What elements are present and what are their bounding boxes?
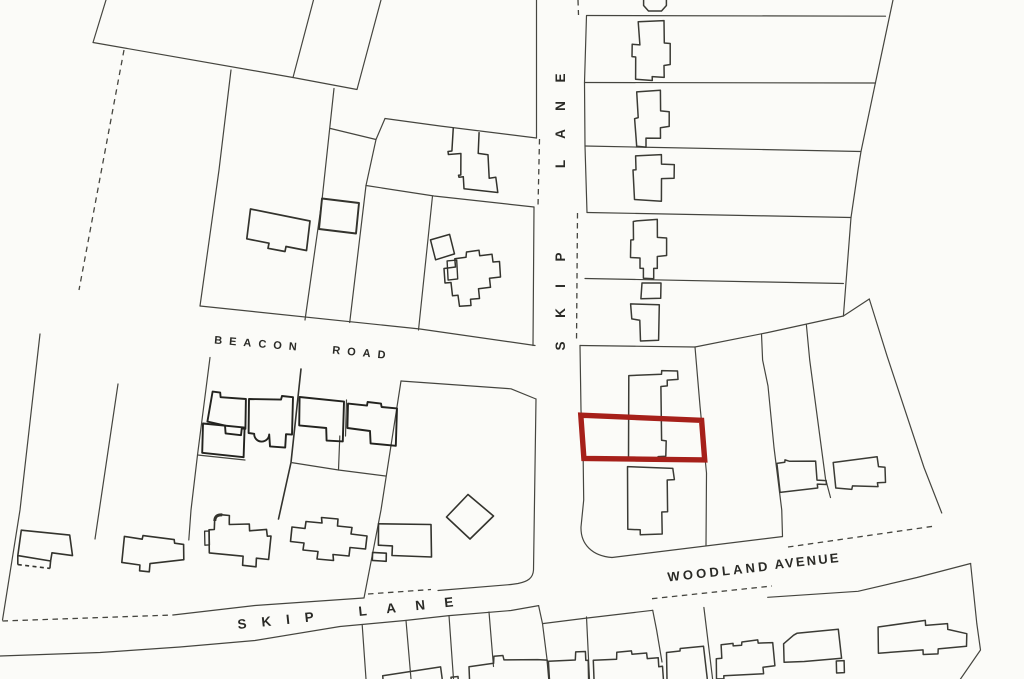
svg-text:E: E [553, 73, 568, 82]
svg-text:AVENUE: AVENUE [774, 550, 842, 572]
svg-text:S: S [553, 341, 568, 350]
svg-text:A: A [553, 129, 568, 139]
svg-text:P: P [553, 252, 568, 261]
svg-text:ROAD: ROAD [332, 345, 393, 363]
svg-text:WOODLAND: WOODLAND [667, 558, 772, 584]
svg-text:I: I [553, 284, 568, 288]
svg-text:L: L [553, 160, 568, 168]
svg-text:BEACON: BEACON [214, 335, 304, 354]
svg-text:SKIP: SKIP [237, 608, 330, 632]
svg-text:N: N [553, 101, 568, 111]
svg-text:K: K [553, 308, 568, 318]
